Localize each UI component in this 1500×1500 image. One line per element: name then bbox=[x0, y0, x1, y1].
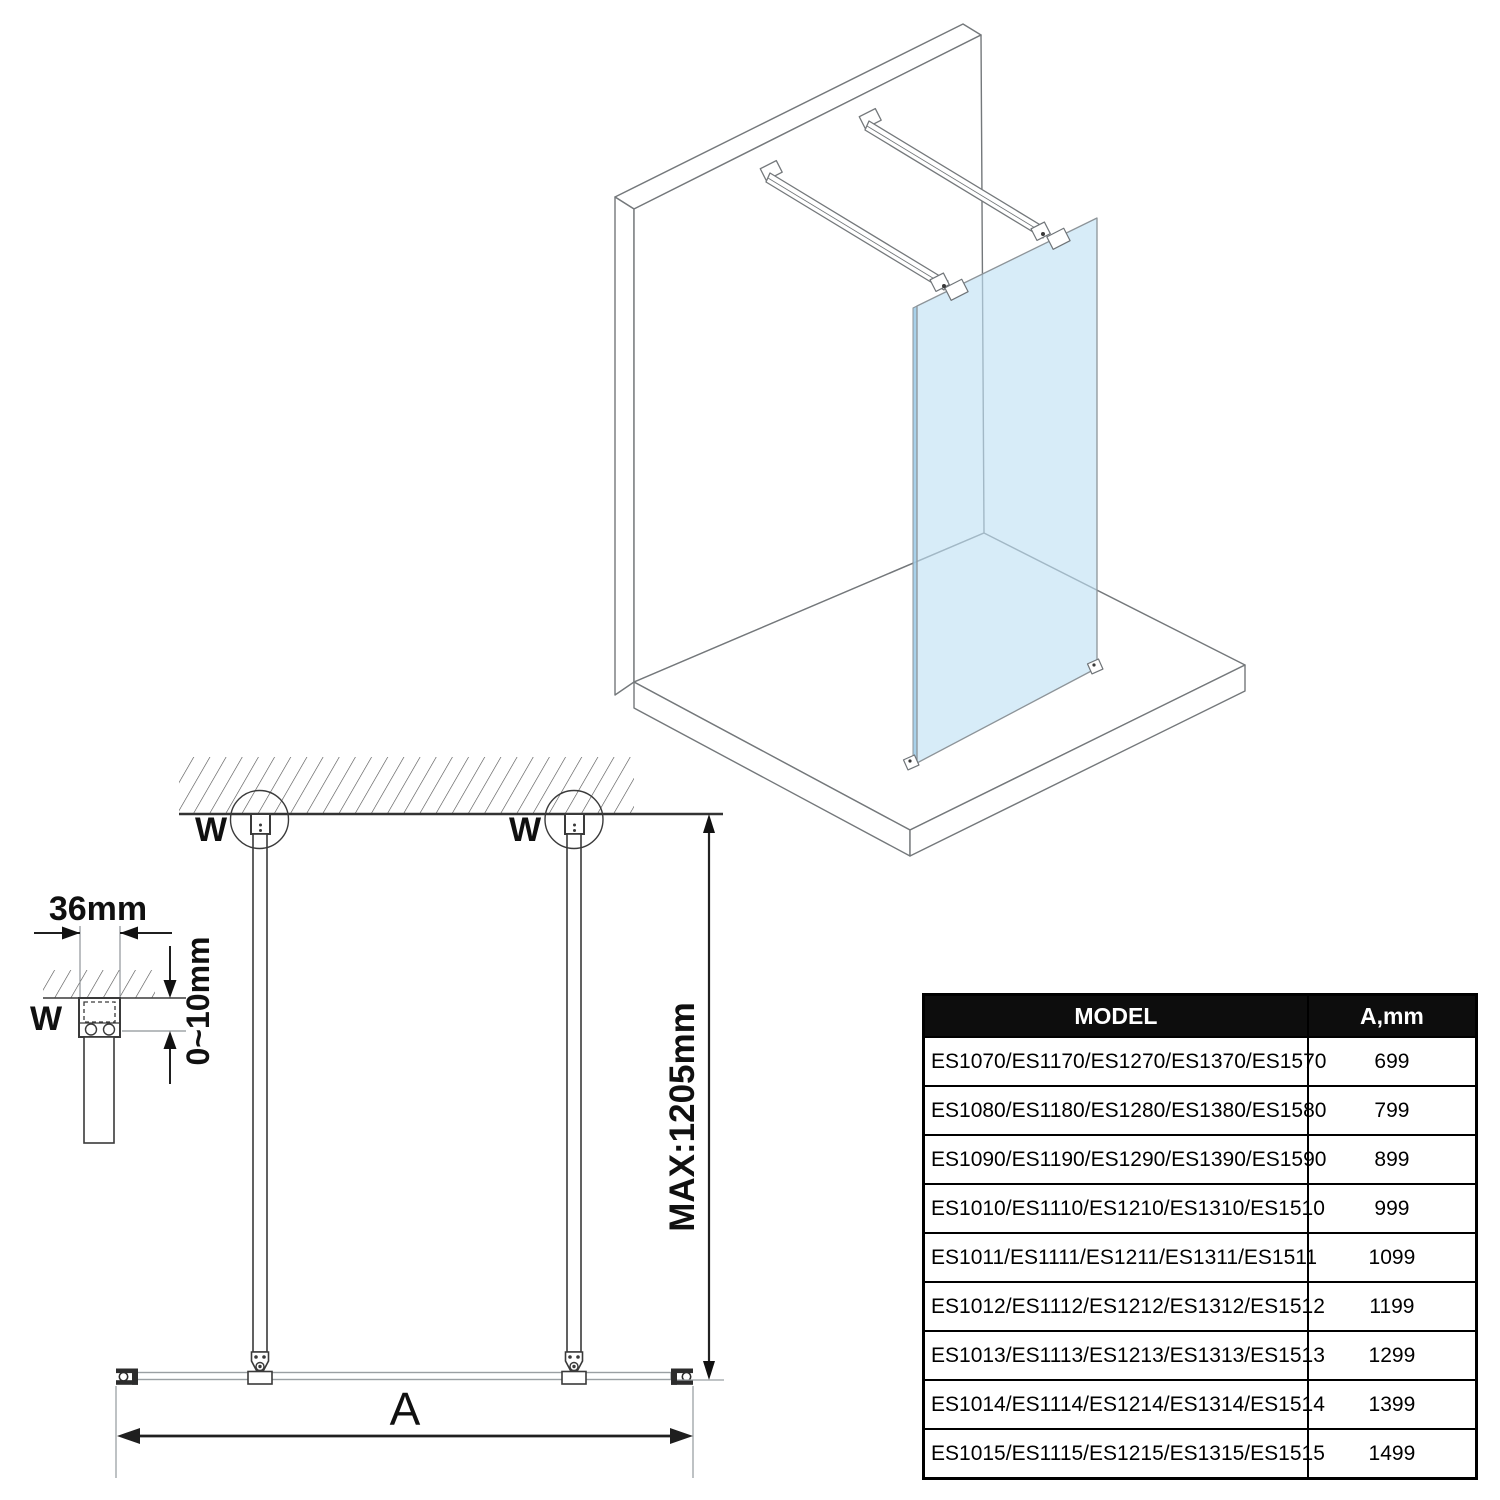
a-mm-cell: 1199 bbox=[1308, 1282, 1477, 1331]
detail-screw-right bbox=[104, 1024, 115, 1035]
right-hinge-dot-2 bbox=[576, 1355, 580, 1359]
model-cell: ES1011/ES1111/ES1211/ES1311/ES1511 bbox=[924, 1233, 1308, 1282]
table-row: ES1080/ES1180/ES1280/ES1380/ES1580 799 bbox=[924, 1086, 1477, 1135]
table-row: ES1013/ES1113/ES1213/ES1313/ES1513 1299 bbox=[924, 1331, 1477, 1380]
detail-bracket-dashed bbox=[84, 1002, 115, 1022]
a-mm-cell: 1399 bbox=[1308, 1380, 1477, 1429]
left-hinge-pivot-pin bbox=[258, 1365, 261, 1368]
left-bracket-dot-1 bbox=[259, 824, 262, 827]
right-hinge-dot-1 bbox=[568, 1355, 572, 1359]
iso-wall-left-face bbox=[615, 197, 634, 695]
model-spec-table: MODEL A,mm ES1070/ES1170/ES1270/ES1370/E… bbox=[922, 993, 1478, 1480]
right-bracket-dot-1 bbox=[573, 824, 576, 827]
a-dim-arrow-left bbox=[117, 1428, 140, 1444]
model-cell: ES1080/ES1180/ES1280/ES1380/ES1580 bbox=[924, 1086, 1308, 1135]
detail-profile-width-label: 36mm bbox=[40, 892, 156, 926]
right-bracket-dot-2 bbox=[573, 829, 576, 832]
d36-arrow-right bbox=[120, 927, 138, 940]
model-cell: ES1013/ES1113/ES1213/ES1313/ES1513 bbox=[924, 1331, 1308, 1380]
detail-adjust-range-label: 0~10mm bbox=[182, 931, 220, 1071]
model-cell: ES1010/ES1110/ES1210/ES1310/ES1510 bbox=[924, 1184, 1308, 1233]
left-hinge-dot-1 bbox=[254, 1355, 258, 1359]
installation-diagram-page: W W MAX:1205mm A 36mm 0~10mm W MODEL A,m… bbox=[0, 0, 1500, 1500]
iso-clamp-front-pin bbox=[942, 284, 946, 288]
right-hinge-pivot-pin bbox=[572, 1365, 575, 1368]
wall-marker-left: W bbox=[188, 813, 234, 847]
detail-bracket bbox=[79, 998, 120, 1143]
detail-screw-left bbox=[86, 1024, 97, 1035]
d36-arrow-left bbox=[62, 927, 80, 940]
right-support bbox=[545, 791, 603, 1371]
max-height-label: MAX:1205mm bbox=[665, 987, 703, 1247]
left-cap-screw bbox=[119, 1373, 127, 1381]
right-connector-block bbox=[562, 1372, 586, 1385]
model-cell: ES1014/ES1114/ES1214/ES1314/ES1514 bbox=[924, 1380, 1308, 1429]
left-support-bar bbox=[253, 834, 267, 1352]
model-cell: ES1070/ES1170/ES1270/ES1370/ES1570 bbox=[924, 1037, 1308, 1086]
model-cell: ES1015/ES1115/ES1215/ES1315/ES1515 bbox=[924, 1429, 1308, 1479]
a-dim-arrow-right bbox=[670, 1428, 693, 1444]
a-mm-cell: 1099 bbox=[1308, 1233, 1477, 1282]
iso-foot-left-pin bbox=[908, 759, 911, 762]
front-view bbox=[116, 757, 724, 1478]
a-mm-cell: 1299 bbox=[1308, 1331, 1477, 1380]
glass-top-view bbox=[137, 1373, 671, 1380]
width-dim-label: A bbox=[375, 1386, 435, 1432]
table-row: ES1012/ES1112/ES1212/ES1312/ES1512 1199 bbox=[924, 1282, 1477, 1331]
a-mm-cell: 799 bbox=[1308, 1086, 1477, 1135]
left-support bbox=[231, 791, 289, 1371]
a-mm-cell: 899 bbox=[1308, 1135, 1477, 1184]
table-row: ES1015/ES1115/ES1215/ES1315/ES1515 1499 bbox=[924, 1429, 1477, 1479]
left-connector-block bbox=[248, 1372, 272, 1385]
header-a-mm: A,mm bbox=[1308, 995, 1477, 1038]
a-mm-cell: 1499 bbox=[1308, 1429, 1477, 1479]
left-bracket-dot-2 bbox=[259, 829, 262, 832]
a-mm-cell: 999 bbox=[1308, 1184, 1477, 1233]
left-wall-profile-cap bbox=[116, 1369, 138, 1385]
max-dim-arrow-down bbox=[703, 1361, 715, 1380]
iso-clamp-back-pin bbox=[1041, 232, 1045, 236]
iso-glass-panel bbox=[913, 218, 1097, 765]
iso-glass-front-face bbox=[917, 218, 1097, 763]
model-cell: ES1012/ES1112/ES1212/ES1312/ES1512 bbox=[924, 1282, 1308, 1331]
d010-arrow-down bbox=[164, 980, 177, 998]
d010-arrow-up bbox=[164, 1031, 177, 1049]
iso-view bbox=[615, 24, 1245, 856]
detail-wall-hatch bbox=[43, 970, 155, 998]
left-hinge-dot-2 bbox=[262, 1355, 266, 1359]
wall-marker-right: W bbox=[502, 813, 548, 847]
header-model: MODEL bbox=[924, 995, 1308, 1038]
right-cap-block bbox=[671, 1369, 677, 1385]
table-row: ES1090/ES1190/ES1290/ES1390/ES1590 899 bbox=[924, 1135, 1477, 1184]
a-mm-cell: 699 bbox=[1308, 1037, 1477, 1086]
table-header-row: MODEL A,mm bbox=[924, 995, 1477, 1038]
detail-bar bbox=[84, 1037, 114, 1143]
left-cap-block bbox=[132, 1369, 138, 1385]
table-row: ES1070/ES1170/ES1270/ES1370/ES1570 699 bbox=[924, 1037, 1477, 1086]
iso-foot-right-pin bbox=[1092, 663, 1095, 666]
model-cell: ES1090/ES1190/ES1290/ES1390/ES1590 bbox=[924, 1135, 1308, 1184]
table-row: ES1010/ES1110/ES1210/ES1310/ES1510 999 bbox=[924, 1184, 1477, 1233]
table-row: ES1014/ES1114/ES1214/ES1314/ES1514 1399 bbox=[924, 1380, 1477, 1429]
max-dim-arrow-up bbox=[703, 814, 715, 833]
right-wall-profile-cap bbox=[671, 1369, 693, 1385]
table-row: ES1011/ES1111/ES1211/ES1311/ES1511 1099 bbox=[924, 1233, 1477, 1282]
detail-wall-marker: W bbox=[24, 1002, 68, 1036]
ceiling-hatch bbox=[179, 757, 634, 814]
right-support-bar bbox=[567, 834, 581, 1352]
